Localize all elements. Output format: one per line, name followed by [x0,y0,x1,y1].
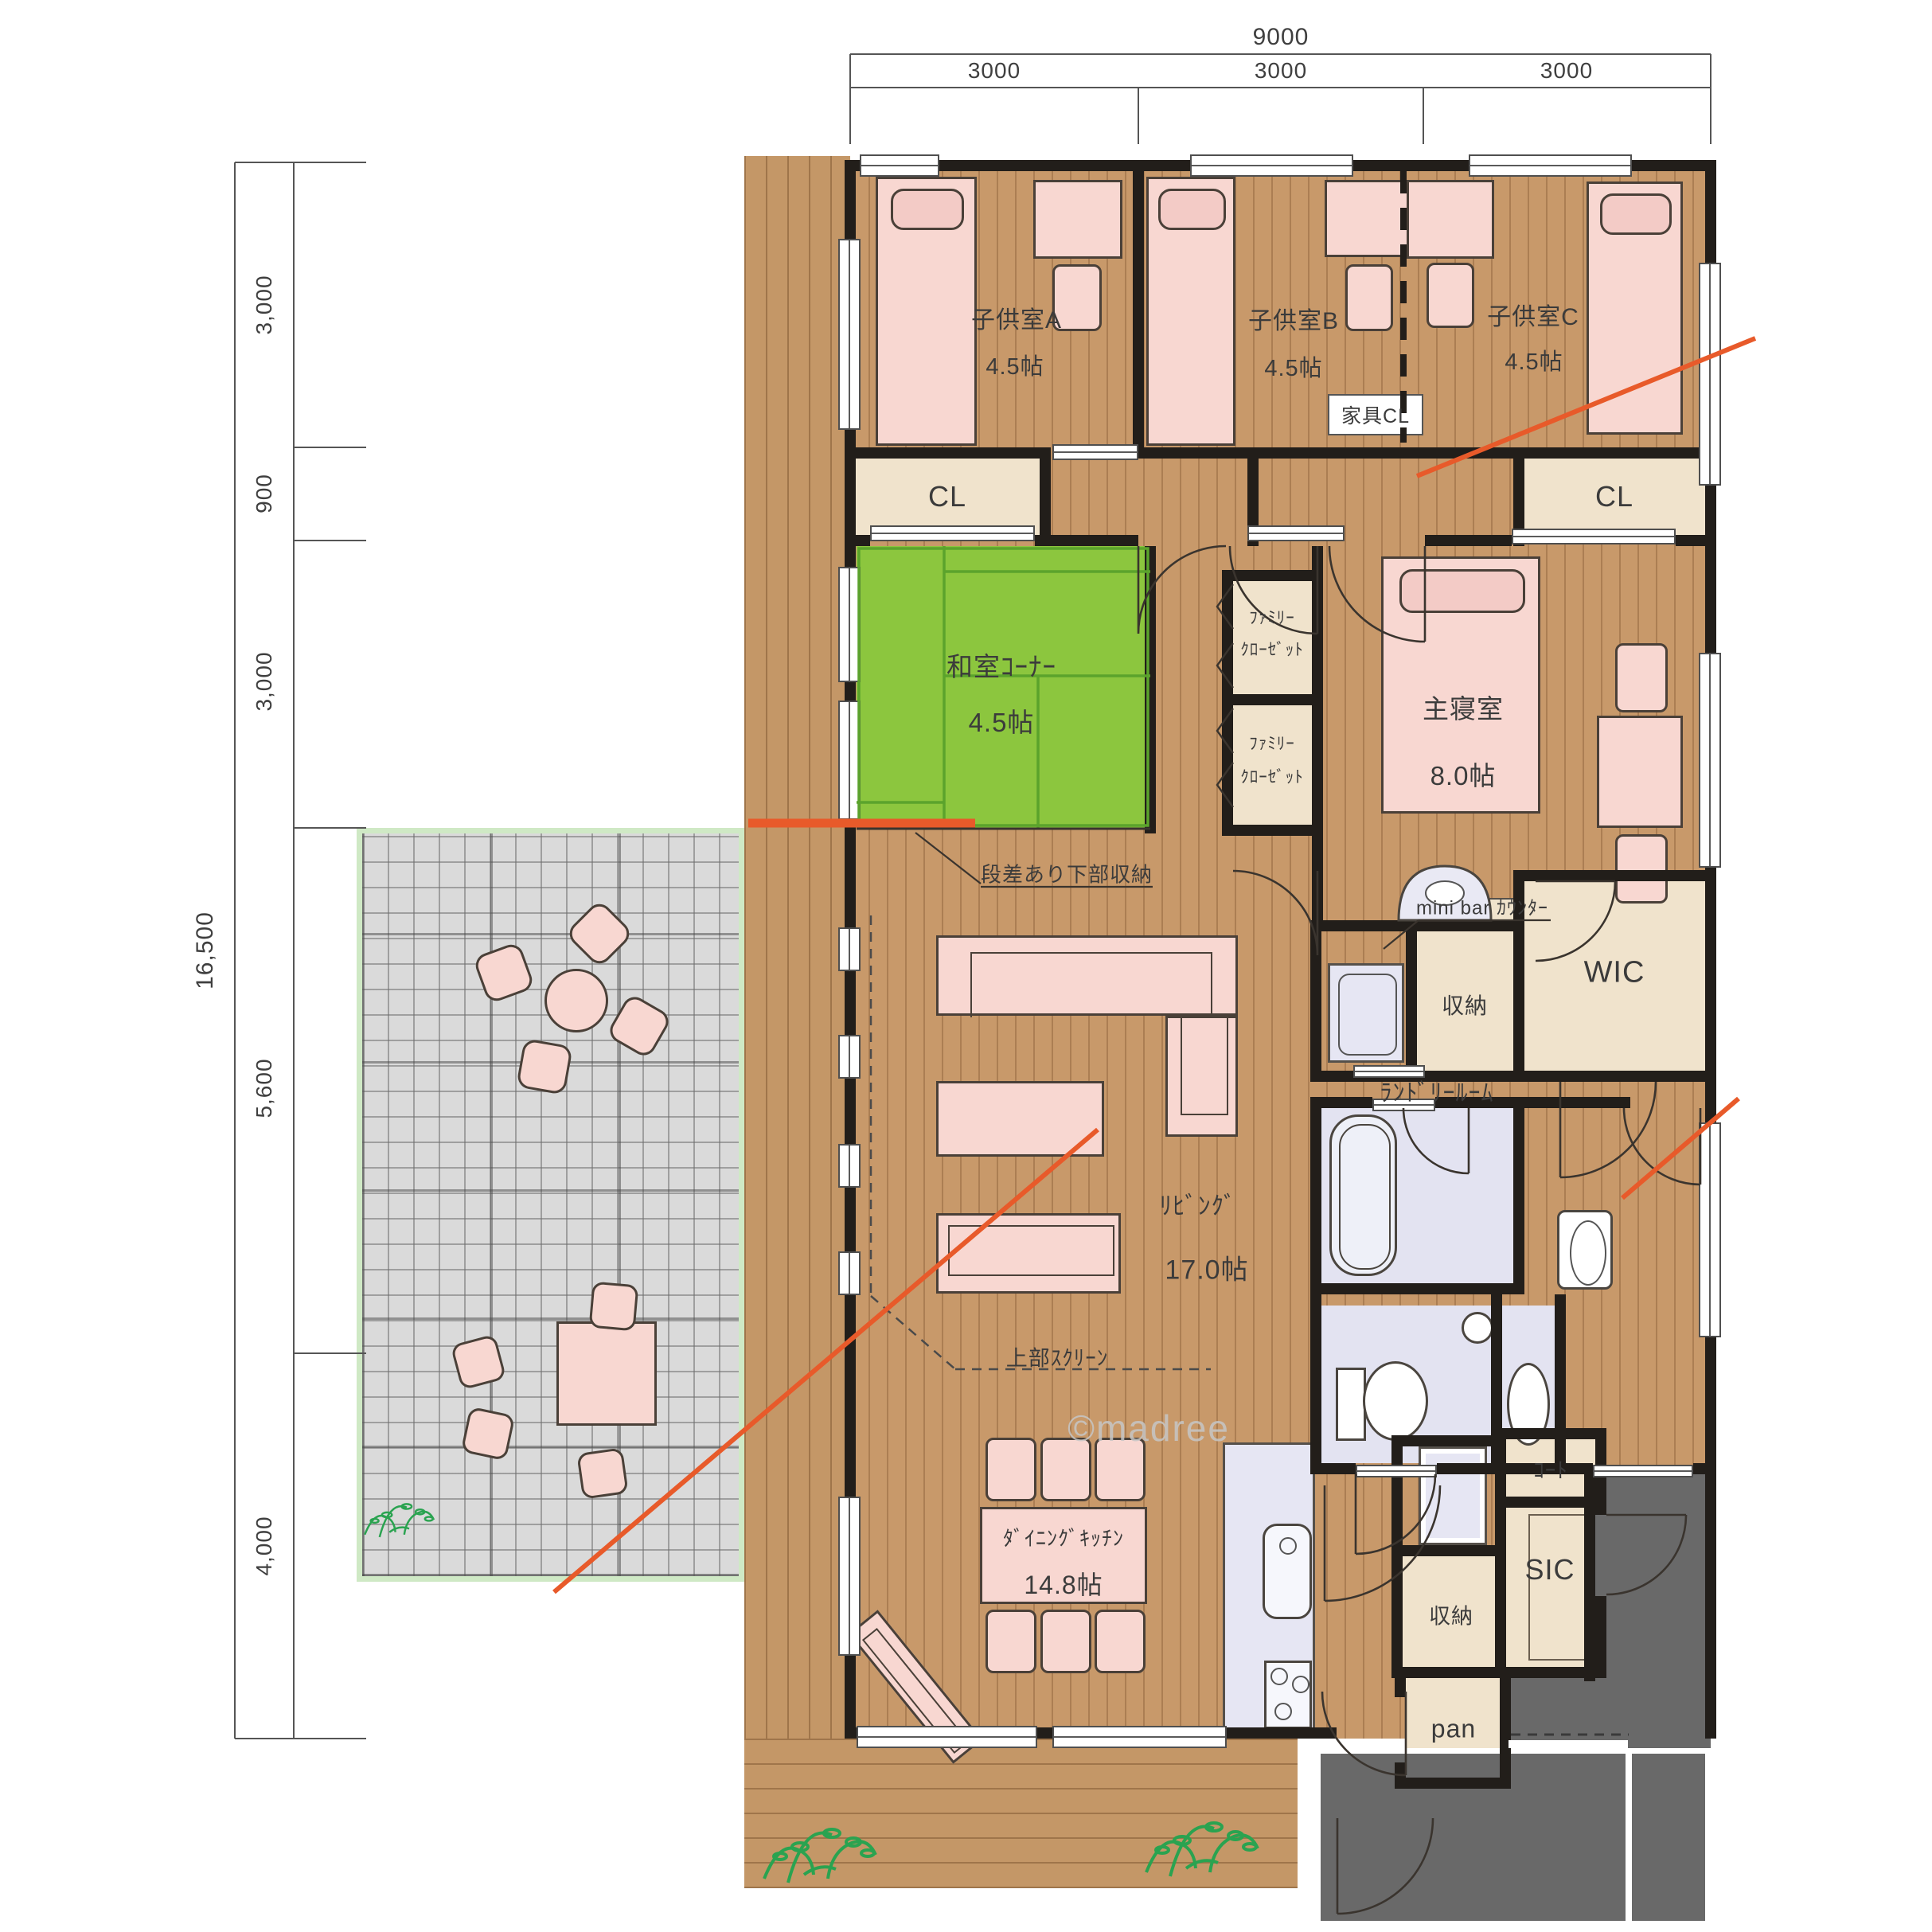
window [1469,154,1632,177]
chair [986,1610,1036,1673]
wood-deck-left [744,156,850,1888]
window [838,1144,861,1188]
window [838,1035,861,1079]
room-size-master: 8.0帖 [1430,755,1497,793]
window [860,154,939,177]
room-label-laundry: ﾗﾝﾄﾞﾘｰﾙｰﾑ [1380,1073,1494,1108]
wall [1513,1097,1524,1294]
wall [1693,1463,1711,1474]
room-label-living: ﾘﾋﾞﾝｸﾞ [1160,1186,1237,1222]
entrance-lower-floor [1505,1676,1711,1748]
garden-table [544,969,608,1032]
wall [845,447,1049,459]
sic-shelf [1528,1514,1592,1661]
wall [1395,1678,1406,1697]
desk [1033,180,1122,259]
room-size-child-b: 4.5帖 [1264,349,1322,383]
window [1699,263,1721,486]
table [1597,716,1683,828]
kitchen-sink [1263,1524,1312,1619]
dim-left-seg: 5,600 [252,1058,277,1118]
hall-vanity [1557,1210,1613,1290]
garden-chair [589,1282,639,1332]
wall [1310,1294,1321,1474]
watermark: ©madree [1067,1407,1230,1450]
sofa-l-corner [1165,1016,1238,1137]
wall [1425,535,1512,546]
floor-plan: 9000 3000 3000 3000 16,500 3,000 900 3,0… [0,0,1932,1932]
room-label-dining: ﾀﾞｲﾆﾝｸﾞｷｯﾁﾝ [1003,1523,1124,1552]
window [1052,1726,1227,1748]
label-minibar: mini bar ｶｳﾝﾀｰ [1416,892,1548,920]
wall [1310,1283,1524,1294]
wall [1222,694,1323,705]
sofa [936,1213,1121,1294]
dim-top-seg: 3000 [968,58,1021,84]
label-sic: SIC [1524,1553,1575,1587]
entrance-porch [1315,1748,1711,1926]
garden-chair [576,1447,629,1500]
garden-chair [461,1407,516,1462]
window [838,701,861,820]
window [1190,154,1353,177]
wall [1595,1596,1606,1678]
wall [1406,931,1417,1082]
washing-machine [1328,963,1404,1063]
dim-left-seg: 3,000 [252,651,277,711]
wall [1495,1428,1506,1678]
sliding-door [870,525,1035,541]
chair [1615,643,1668,712]
room-size-washitsu: 4.5帖 [969,701,1035,740]
window [1699,1122,1721,1337]
window [838,927,861,971]
wood-deck-bottom [744,1739,1298,1888]
chair [1615,834,1668,904]
sliding-door [1356,1465,1437,1477]
wall [1555,1294,1566,1474]
wall [1035,535,1138,546]
sofa-l-top [936,935,1238,1016]
bed [1587,181,1683,435]
chair [1345,264,1393,331]
chair [1040,1610,1091,1673]
corner-basin [1462,1312,1493,1344]
label-coat: ｺｰﾄ [1533,1454,1568,1485]
stove [1264,1661,1312,1729]
label-upper-screen: 上部ｽｸﾘｰﾝ [1006,1341,1109,1372]
dim-left-seg: 900 [252,474,277,513]
room-size-child-a: 4.5帖 [986,348,1044,381]
window [1699,653,1721,868]
bathtub [1329,1114,1397,1276]
terrace-tiles [357,828,744,1582]
coffee-table [936,1081,1104,1157]
wall [1145,546,1156,833]
window [857,1726,1037,1748]
label-family-closet-1: ｸﾛｰｾﾞｯﾄ [1240,637,1304,661]
dim-left-total: 16,500 [192,911,219,989]
bed [876,177,977,446]
garden-rect-table [556,1321,657,1426]
wall [1524,1097,1630,1108]
dim-left-seg: 3,000 [252,275,277,334]
room-label-master: 主寝室 [1423,688,1504,726]
room-size-child-c: 4.5帖 [1505,343,1563,377]
note-step-storage: 段差あり下部収納 [981,859,1153,888]
window [838,1251,861,1295]
room-label-washitsu: 和室ｺｰﾅｰ [946,646,1056,684]
wall [1312,546,1323,931]
label-storage-hall: 収納 [1429,1599,1473,1630]
chair [1427,263,1474,328]
dim-top-total: 9000 [1253,24,1309,51]
window [838,239,861,430]
sliding-door [1512,529,1676,544]
sliding-door [1052,444,1138,460]
dim-top-seg: 3000 [1540,58,1593,84]
wall [1222,825,1323,836]
wall [1513,1071,1711,1082]
porch-divider [1626,1748,1632,1926]
tatami-floor [857,546,1150,828]
wall [1222,570,1323,581]
sliding-door [1247,525,1345,541]
room-label-child-b: 子供室B [1248,301,1339,336]
room-label-child-a: 子供室A [971,300,1062,335]
wall [1495,1428,1606,1439]
bed [1146,177,1235,446]
wall [1676,535,1711,546]
refrigerator [1419,1446,1487,1545]
window [838,567,861,682]
wall [1437,1463,1593,1474]
toilet-tank [1336,1368,1366,1441]
wall [1391,1545,1495,1556]
entrance-step [1509,1740,1628,1748]
chair [1095,1610,1146,1673]
wall [1500,1678,1511,1789]
wall [1513,870,1711,881]
room-label-wic: WIC [1584,956,1645,990]
wall [1310,920,1321,1082]
wall [1133,160,1144,459]
label-family-closet-2: ｸﾛｰｾﾞｯﾄ [1240,764,1304,788]
wall [1391,1667,1606,1678]
wall [845,535,870,546]
wall [1391,1435,1495,1446]
label-storage-laundry: 収納 [1442,989,1488,1021]
window [838,1497,861,1656]
label-closet-left: CL [928,480,966,513]
label-pantry: pan [1431,1715,1476,1744]
wall [1310,1097,1321,1294]
wall [1310,1463,1356,1474]
wall [1395,1778,1511,1789]
room-label-child-c: 子供室C [1487,297,1579,332]
dim-left-seg: 4,000 [252,1516,277,1575]
desk [1325,180,1414,257]
wall [1138,447,1711,459]
chair [986,1438,1036,1501]
wall [1495,1497,1606,1508]
sliding-door [1593,1465,1693,1477]
desk [1407,180,1494,259]
label-family-closet-1: ﾌｧﾐﾘｰ [1249,605,1295,629]
label-closet-right: CL [1595,480,1633,513]
wall [1310,920,1524,931]
room-size-dining: 14.8帖 [1024,1565,1103,1602]
garden-chair [516,1038,573,1095]
label-furniture-closet: 家具CL [1341,400,1410,429]
room-size-living: 17.0帖 [1165,1248,1248,1287]
label-family-closet-2: ﾌｧﾐﾘｰ [1249,731,1295,755]
toilet-bowl [1363,1361,1428,1441]
dim-top-seg: 3000 [1255,58,1307,84]
wall [1040,447,1051,546]
